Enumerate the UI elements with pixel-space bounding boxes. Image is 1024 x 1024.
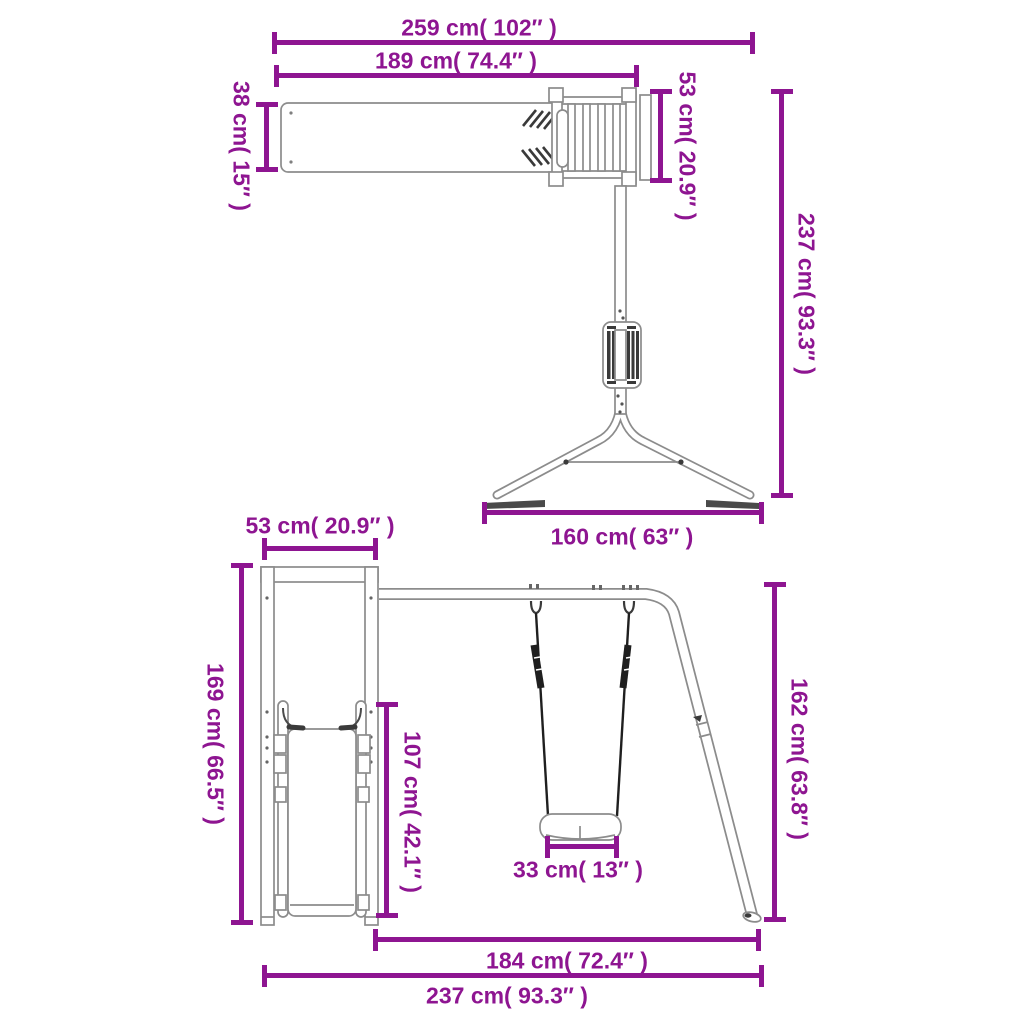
dim-label-ladder-width: 53 cm( 20.9″ ) [674, 71, 701, 220]
anchor-feet [483, 500, 759, 509]
tick [650, 89, 672, 94]
tick [771, 89, 793, 94]
beam-bracket [603, 322, 641, 388]
dim-label-front-overall-width: 237 cm( 93.3″ ) [426, 983, 588, 1010]
dim-line-tower-height [239, 564, 244, 924]
dimension-diagram-canvas: 259 cm( 102″ ) 189 cm( 74.4″ ) 38 cm( 15… [0, 0, 1024, 1024]
tick [262, 965, 267, 987]
dim-line-swing-span [374, 937, 760, 942]
dim-label-swing-span: 184 cm( 72.4″ ) [486, 948, 648, 975]
tick [482, 502, 487, 524]
tick [764, 917, 786, 922]
tick [750, 32, 755, 54]
tick [756, 929, 761, 951]
ladder-top-view [549, 88, 651, 186]
tick [764, 582, 786, 587]
slide [274, 701, 370, 917]
dim-label-seat-width: 33 cm( 13″ ) [513, 857, 643, 884]
tick [650, 178, 672, 183]
tick [231, 920, 253, 925]
tick [771, 493, 793, 498]
tick [256, 102, 278, 107]
tick [373, 929, 378, 951]
dim-line-total-depth [779, 90, 784, 497]
tick [274, 65, 279, 87]
front-view-drawing [261, 567, 762, 925]
dim-label-tower-depth: 53 cm( 20.9″ ) [245, 513, 394, 540]
dim-label-feet-spread: 160 cm( 63″ ) [551, 524, 694, 551]
tick [614, 836, 619, 858]
tick [376, 913, 398, 918]
dim-line-front-overall-width [263, 973, 763, 978]
dim-line-feet-spread [483, 510, 763, 515]
tick [373, 538, 378, 560]
dim-line-swing-height [772, 583, 777, 921]
dim-line-tower-depth [263, 546, 377, 551]
tick [256, 167, 278, 172]
tick [759, 965, 764, 987]
dim-label-board-depth: 38 cm( 15″ ) [228, 81, 255, 211]
dim-label-total-depth: 237 cm( 93.3″ ) [793, 213, 820, 375]
climbing-board [281, 103, 558, 172]
tick [262, 538, 267, 560]
tick [272, 32, 277, 54]
dim-label-wall-board-width: 189 cm( 74.4″ ) [375, 48, 537, 75]
slide-handles [283, 708, 361, 728]
swing-hangers [531, 601, 634, 613]
tick [759, 502, 764, 524]
dim-line-seat-width [546, 844, 618, 849]
dim-label-top-overall-width: 259 cm( 102″ ) [401, 15, 557, 42]
tick [231, 563, 253, 568]
dim-line-ladder-width [658, 90, 663, 182]
tick [545, 836, 550, 858]
dim-line-slide-height [384, 703, 389, 917]
a-frame-legs [497, 406, 750, 495]
frame-foot [742, 910, 762, 923]
dim-label-tower-height: 169 cm( 66.5″ ) [202, 663, 229, 825]
swing-ropes [534, 613, 632, 816]
dim-label-swing-height: 162 cm( 63.8″ ) [786, 678, 813, 840]
dim-line-board-depth [264, 103, 269, 171]
tick [376, 702, 398, 707]
dim-label-slide-height: 107 cm( 42.1″ ) [399, 731, 426, 893]
swing-seat [540, 814, 621, 840]
tick [634, 65, 639, 87]
